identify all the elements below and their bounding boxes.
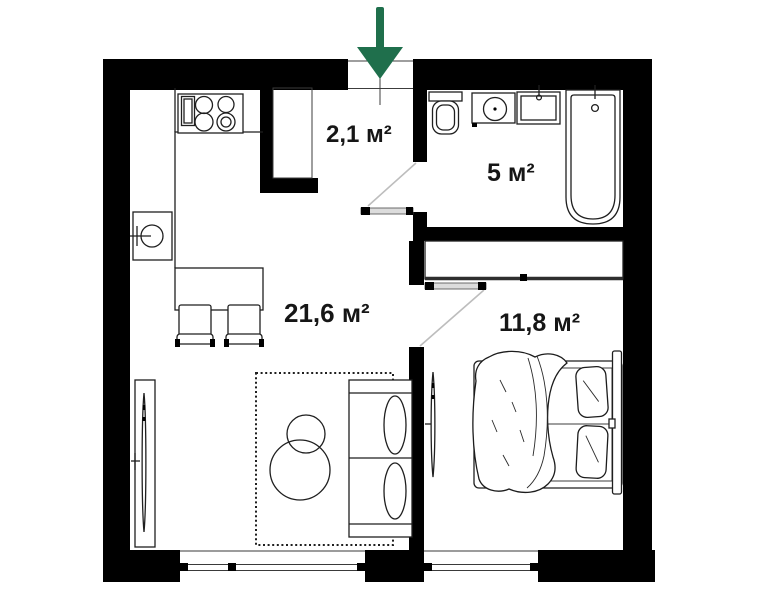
wall-right (623, 59, 652, 582)
chair-icon (224, 305, 264, 347)
stove-icon (178, 94, 243, 133)
coffee-table (270, 440, 330, 500)
floor-plan-drawing: 2,1 м² 5 м² 21,6 м² 11,8 м² (0, 0, 759, 610)
floor-plan: 2,1 м² 5 м² 21,6 м² 11,8 м² (0, 0, 759, 610)
entry-closet (273, 88, 312, 178)
living-room-window (180, 551, 365, 571)
entrance-arrow-shaft (376, 7, 384, 51)
bedroom-window (424, 551, 538, 571)
bedroom-area-label: 11,8 м² (499, 309, 580, 337)
wardrobe (425, 241, 623, 281)
living-area-label: 21,6 м² (284, 298, 370, 328)
dining-table (175, 268, 263, 310)
wall-top-left (103, 59, 348, 90)
hallway-area-label: 2,1 м² (326, 121, 392, 148)
kitchen-sink-icon (130, 212, 172, 260)
bathroom-door (361, 163, 416, 215)
kitchen-counter (175, 132, 263, 268)
sofa (349, 380, 412, 537)
wall-living-bedroom-top (409, 241, 424, 285)
chair-icon (175, 305, 215, 347)
tv-stand (131, 380, 155, 547)
toilet-icon (429, 92, 462, 134)
sofa-cushion (384, 396, 406, 454)
wall-closet-vertical (260, 88, 273, 193)
windows (180, 551, 538, 571)
bathtub-icon (566, 85, 620, 224)
wall-bathroom-bottom (413, 227, 623, 241)
bedroom-door-leaf (425, 283, 486, 289)
washing-machine-icon (472, 93, 515, 127)
entrance-arrow-icon (357, 47, 403, 79)
bedroom-door (420, 282, 486, 346)
wall-top-right (413, 59, 652, 90)
wall-tv (425, 372, 435, 477)
pillow (576, 425, 609, 478)
bathroom-sink-icon (517, 85, 560, 124)
wall-bottom-right (538, 550, 655, 582)
bedroom-furniture (425, 241, 623, 494)
wall-bottom-middle (365, 550, 424, 582)
sofa-cushion (384, 463, 406, 519)
wall-hall-bath-top (413, 88, 427, 162)
wall-closet-bottom (260, 178, 318, 193)
kitchen (130, 88, 264, 347)
wall-left (103, 59, 130, 582)
pillow (575, 366, 608, 418)
coffee-table (287, 415, 325, 453)
bathroom-fixtures (429, 85, 620, 224)
living-furniture (131, 373, 412, 547)
bathroom-area-label: 5 м² (487, 159, 535, 187)
double-bed (473, 351, 622, 494)
entrance (348, 7, 413, 105)
wall-bottom-left (103, 550, 180, 582)
